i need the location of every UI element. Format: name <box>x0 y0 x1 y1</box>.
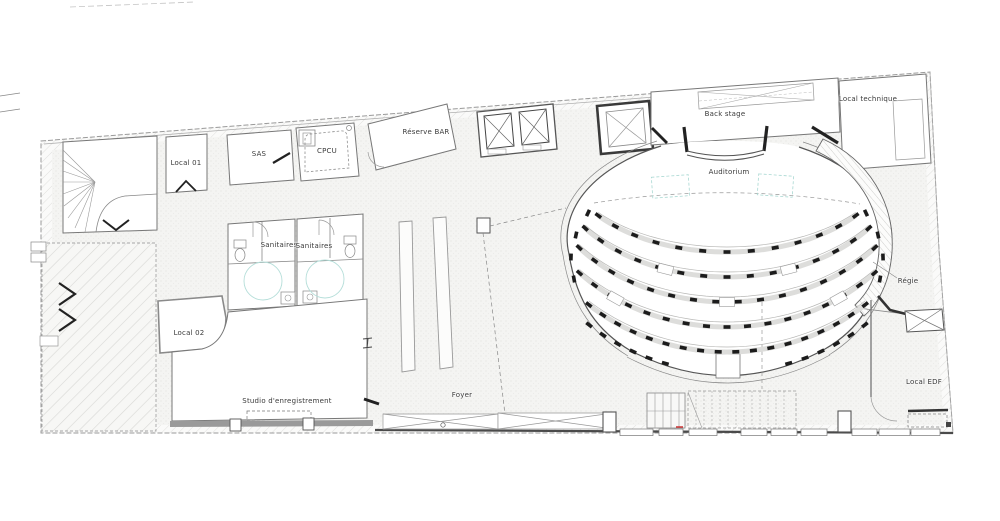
rear-exit-vestibule <box>716 354 740 378</box>
room-label-sanitaires-2: Sanitaires <box>296 242 333 250</box>
room-label-local-edf: Local EDF <box>906 378 942 386</box>
room-label-sanitaires-1: Sanitaires <box>261 241 298 249</box>
room-label-foyer: Foyer <box>452 391 472 399</box>
toilet-1 <box>234 240 246 248</box>
room-label-back-stage: Back stage <box>705 110 746 118</box>
room-sanitaires-1 <box>228 219 295 310</box>
room-local-technique <box>839 74 931 170</box>
adjacent-hatched-zone <box>42 243 156 431</box>
sink-1 <box>281 292 295 304</box>
room-stairwell <box>63 136 157 233</box>
room-label-cpcu: CPCU <box>317 147 337 155</box>
room-label-local-technique: Local technique <box>839 95 897 103</box>
room-label-auditorium: Auditorium <box>709 168 750 176</box>
room-label-sas: SAS <box>252 150 266 158</box>
room-label-studio: Studio d'enregistrement <box>242 397 331 405</box>
toilet-2 <box>344 236 356 244</box>
foyer-strip-1 <box>399 221 415 372</box>
wall-pier-1 <box>603 412 616 432</box>
sink-2 <box>303 291 317 303</box>
foyer-column <box>477 218 490 233</box>
technique-equipment <box>893 99 925 160</box>
room-label-reserve-bar: Réserve BAR <box>402 128 449 136</box>
freight-elevator <box>597 101 653 154</box>
room-sanitaires-2 <box>297 214 363 306</box>
room-label-local-01: Local 01 <box>171 159 202 167</box>
offsite-property-line <box>70 2 195 7</box>
studio-south-wall <box>170 423 373 424</box>
floor-plan-canvas: Local 01 SAS CPCU Réserve BAR Back stage… <box>0 0 1000 521</box>
room-label-regie: Régie <box>898 277 919 285</box>
cpcu-fixture <box>299 130 315 146</box>
wall-pier-2 <box>838 411 851 432</box>
room-label-local-02: Local 02 <box>174 329 205 337</box>
floor-plan-drawing <box>0 0 1000 521</box>
elevator-bank <box>477 104 557 157</box>
